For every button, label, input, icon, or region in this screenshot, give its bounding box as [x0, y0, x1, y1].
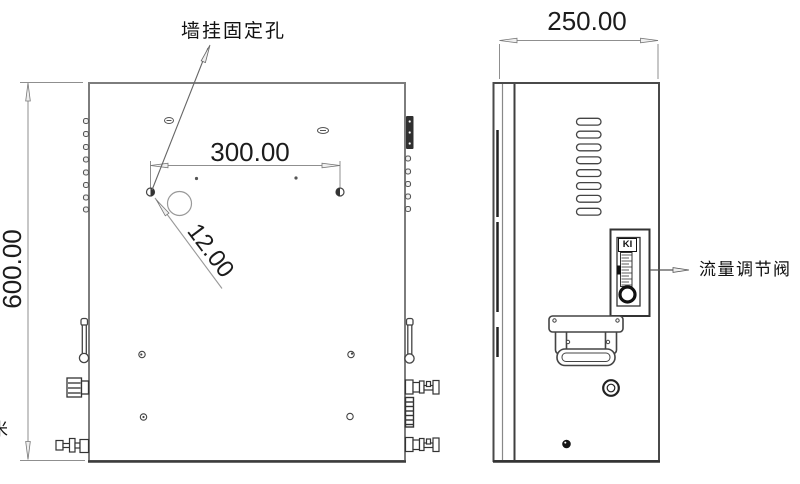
side-view-enclosure — [493, 83, 660, 462]
depth-dimension-text: 250.00 — [540, 8, 634, 34]
dimension-depth-250 — [500, 38, 659, 79]
bottom-screw — [562, 440, 571, 449]
right-louver-tabs — [406, 156, 411, 212]
clipped-edge-glyph: 米 — [0, 421, 8, 438]
right-valve-fitting-upper — [406, 380, 440, 394]
cable-gland — [67, 378, 89, 397]
flowmeter-float — [617, 266, 621, 275]
flow-control-valve-label: 流量调节阀 — [699, 261, 800, 278]
technical-drawing-canvas: 600.00 300.00 250.00 12.00 墙挂固定孔 流量调节阀 K… — [0, 0, 800, 484]
right-latch-pin — [405, 319, 414, 364]
wall-mount-hole-label: 墙挂固定孔 — [181, 22, 301, 41]
flow-adjust-knob — [620, 287, 635, 302]
dimension-height-600 — [20, 83, 85, 461]
hole-spacing-dimension-text: 300.00 — [203, 139, 297, 165]
height-dimension-text: 600.00 — [0, 223, 25, 315]
round-port — [603, 380, 619, 396]
right-terminal-block — [406, 398, 414, 428]
left-latch-pin — [79, 319, 88, 363]
flowmeter-brand-logo: KI — [618, 238, 637, 252]
drawing-linework — [0, 0, 800, 484]
left-valve-fitting — [56, 439, 89, 453]
door-hinge — [406, 116, 414, 149]
left-louver-tabs — [84, 119, 89, 213]
right-valve-fitting-lower — [406, 438, 440, 452]
